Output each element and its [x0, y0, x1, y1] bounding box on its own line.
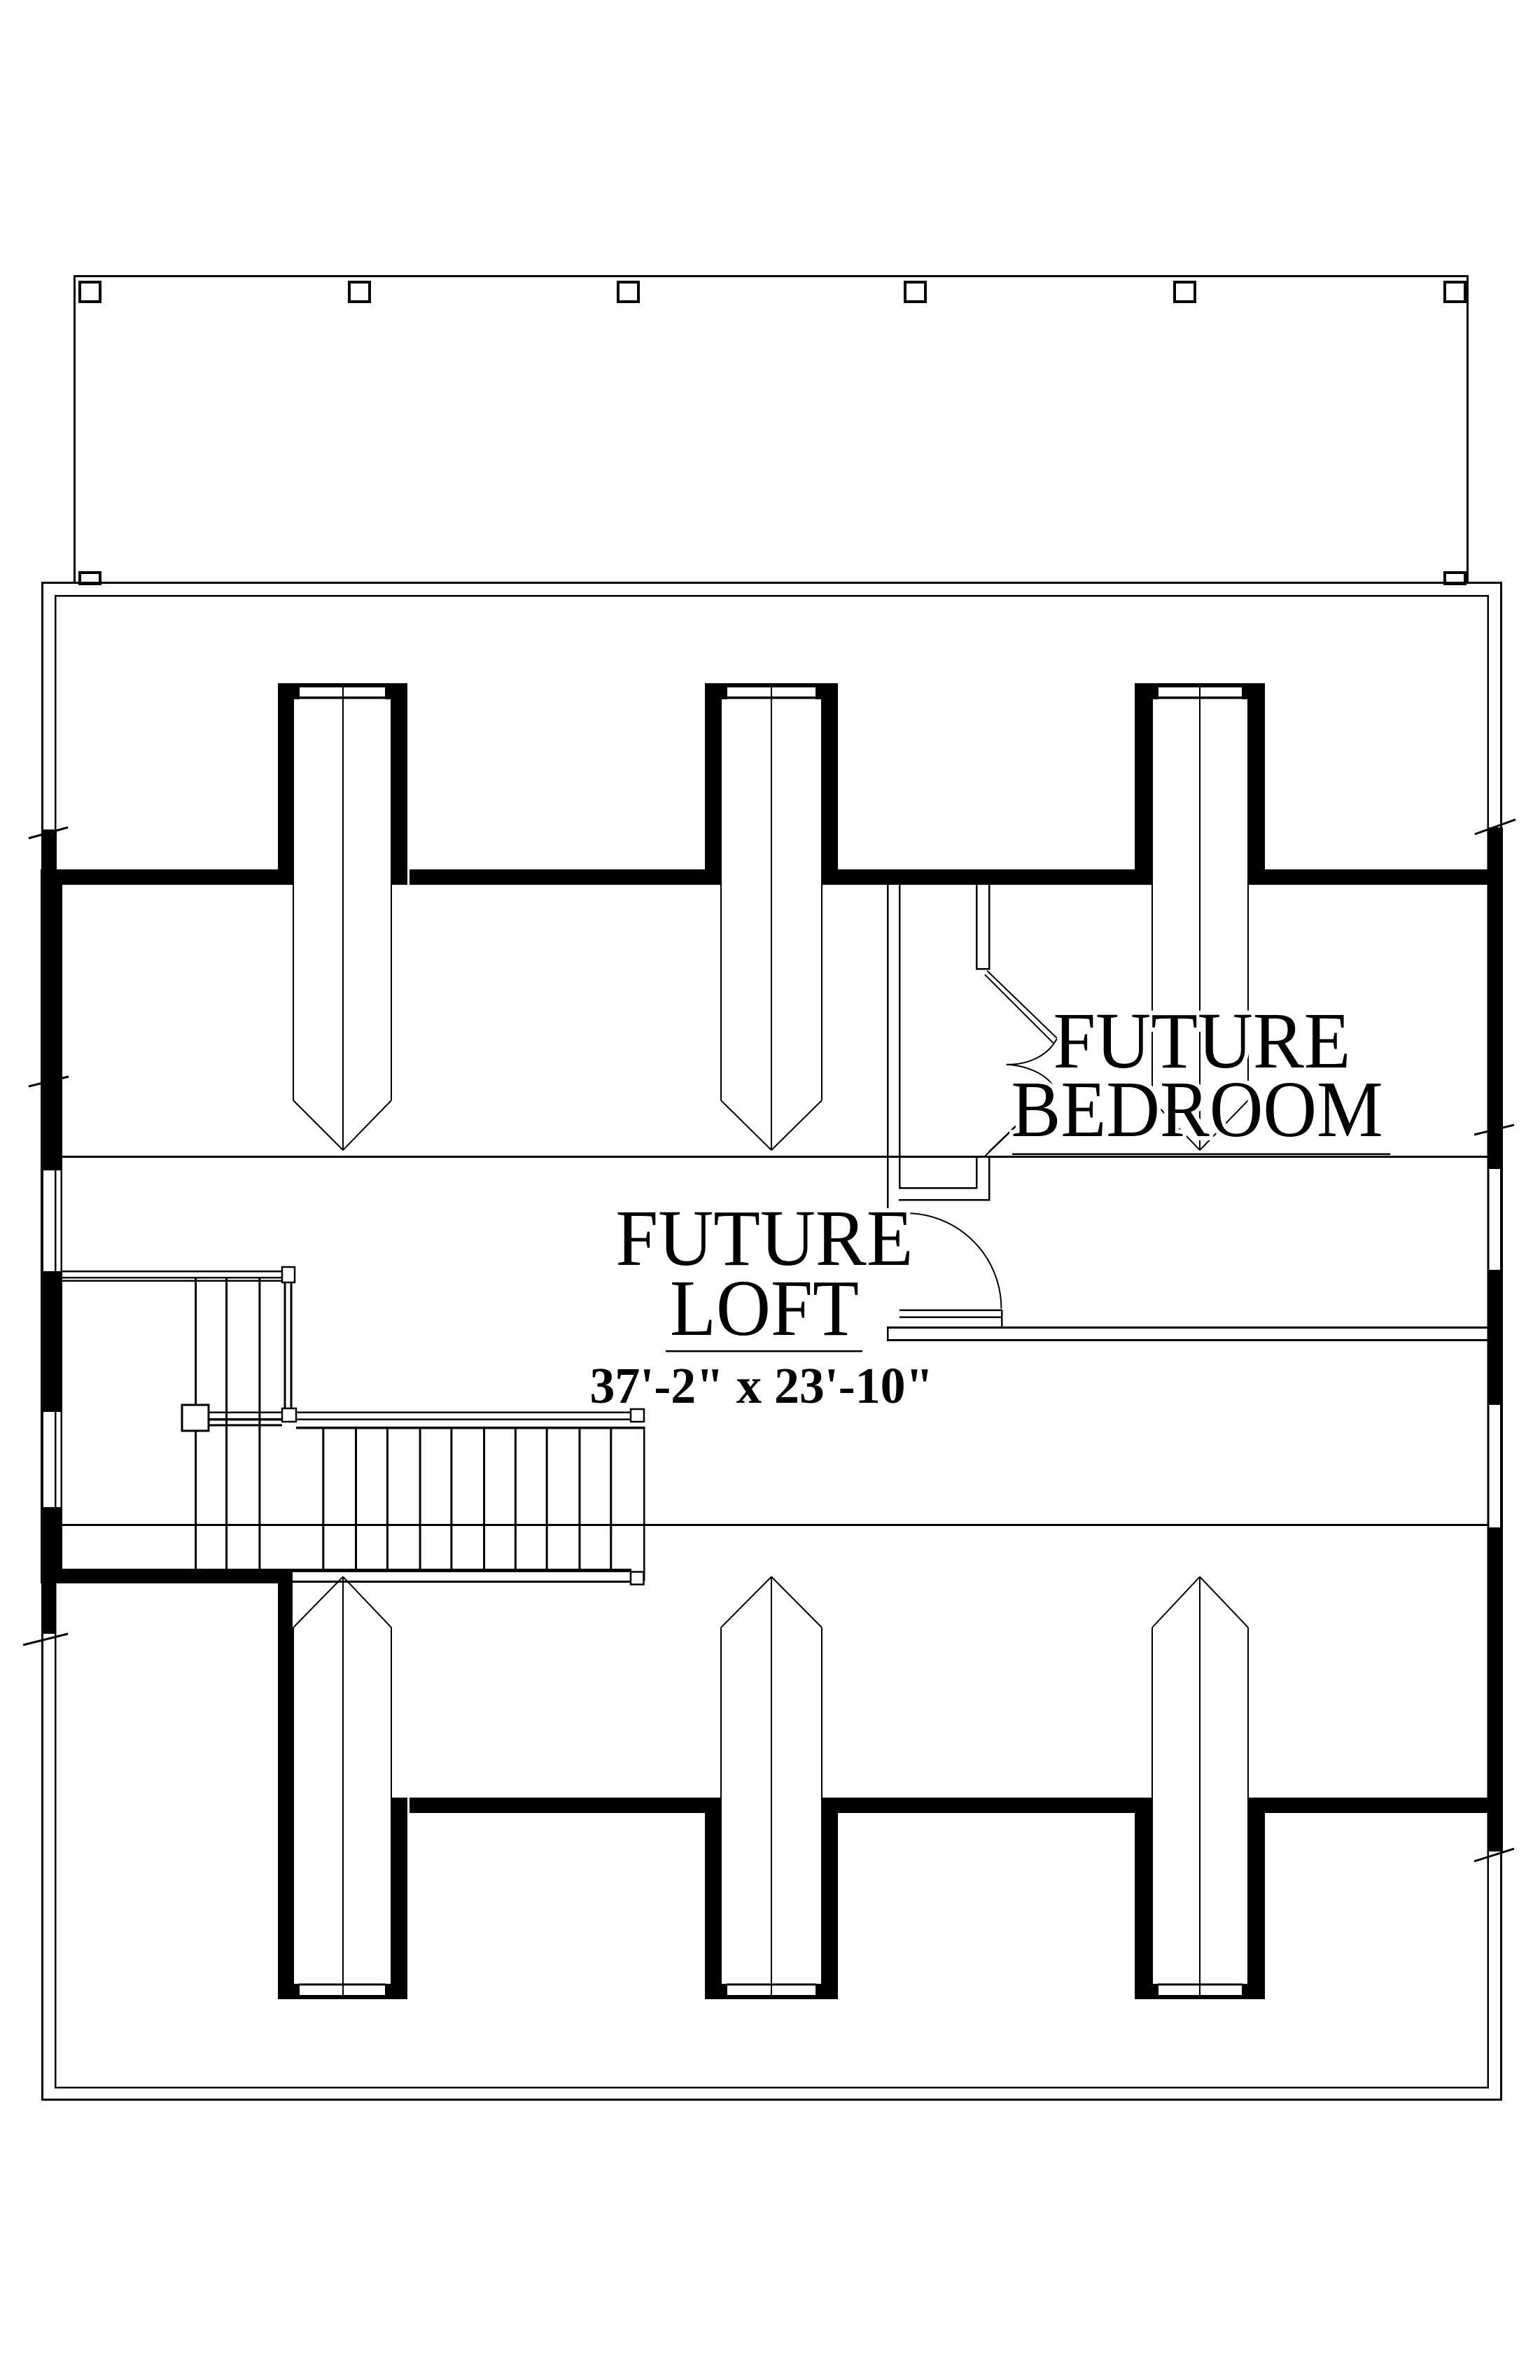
svg-text:LOFT: LOFT: [670, 1263, 859, 1352]
svg-text:37'-2" x 23'-10": 37'-2" x 23'-10": [590, 1357, 934, 1414]
svg-text:BEDROOM: BEDROOM: [1011, 1065, 1383, 1154]
